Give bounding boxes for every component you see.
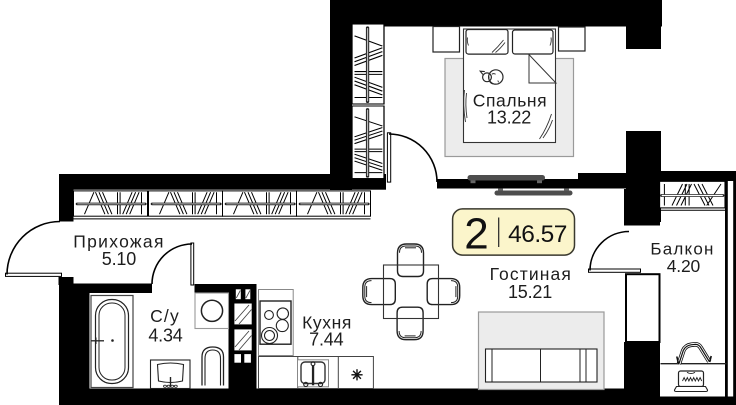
svg-text:4.34: 4.34 (148, 326, 182, 346)
svg-text:46.57: 46.57 (508, 221, 567, 248)
svg-text:5.10: 5.10 (102, 249, 136, 269)
svg-text:2: 2 (464, 210, 488, 259)
svg-text:4.20: 4.20 (667, 256, 701, 276)
svg-text:13.22: 13.22 (487, 108, 531, 128)
svg-text:7.44: 7.44 (309, 330, 343, 350)
svg-text:Гостиная: Гостиная (490, 264, 572, 284)
svg-text:С/у: С/у (150, 306, 180, 326)
svg-text:15.21: 15.21 (508, 282, 552, 302)
